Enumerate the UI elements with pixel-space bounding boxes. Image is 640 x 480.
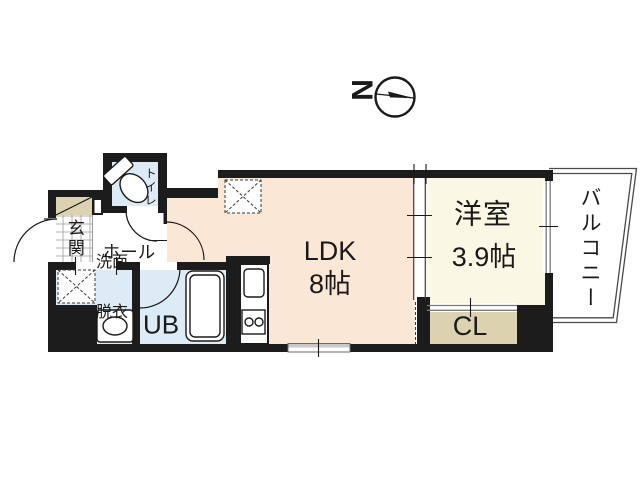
exterior-notch [167, 160, 218, 188]
wall-right-upper [545, 170, 553, 182]
wall-corner-mass [48, 305, 97, 352]
kitchen-counter [240, 264, 268, 344]
closet-label: CL [453, 312, 488, 340]
washroom-label: 洗面 脱衣 [96, 221, 128, 355]
unit-bath-label: UB [143, 311, 179, 338]
wall-top [218, 170, 553, 178]
wall-kitchen-side [226, 256, 240, 344]
opening-bath-door [140, 262, 177, 270]
wall-hall-bottom-c [177, 262, 234, 270]
compass [376, 78, 415, 117]
compass-north-letter: N [345, 79, 377, 101]
stove-burner-right [255, 318, 263, 326]
wall-shoebox-top [48, 190, 103, 197]
washer-space [58, 270, 95, 303]
wall-toilet-top [103, 153, 167, 162]
wall-hall-ldk [164, 196, 168, 224]
ldk-label: LDK [304, 237, 357, 265]
wall-step [160, 188, 218, 198]
ldk-size-label: 8帖 [309, 270, 351, 298]
balcony-label: バルコニー [578, 187, 600, 312]
bathtub [186, 271, 224, 341]
floor-plan: トイレ 玄関 ホール 洗面 脱衣 UB LDK 8帖 洋室 3.9帖 CL バル… [0, 0, 640, 480]
washroom-label-line2: 脱衣 [96, 305, 128, 322]
wall-toilet-bottom [103, 206, 127, 213]
refrigerator-space [225, 180, 261, 213]
toilet-label: トイレ [144, 167, 157, 208]
western-room-size-label: 3.9帖 [452, 243, 517, 271]
western-room-label: 洋室 [454, 199, 512, 228]
partition-track [413, 178, 426, 300]
entrance-door-arc [14, 219, 57, 262]
opening-column-niche [95, 200, 102, 213]
wall-closet-right [517, 305, 553, 352]
wall-kitchen-stub [226, 256, 270, 264]
kitchen-sink [244, 269, 264, 297]
washroom-label-line1: 洗面 [96, 254, 128, 271]
entrance-label: 玄関 [65, 219, 83, 259]
wall-hall-bottom-a [56, 262, 75, 270]
stove-burner-left [245, 318, 253, 326]
